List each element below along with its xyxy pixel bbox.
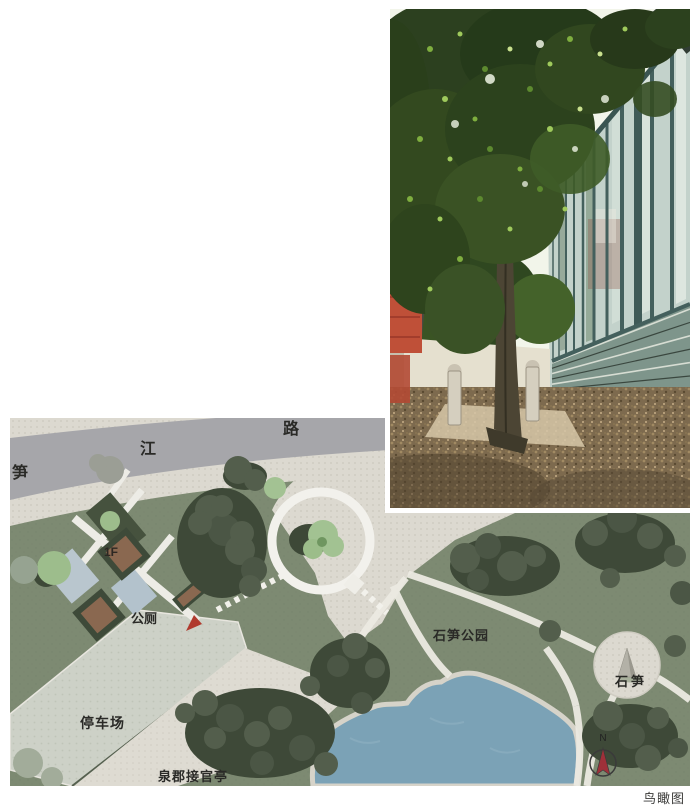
road-name-char-3: 路	[283, 421, 299, 439]
pavilion-label: 泉郡接官亭	[158, 770, 228, 784]
site-photo	[390, 9, 690, 508]
stone-label: 石笋	[615, 675, 647, 689]
compass-north-label: N	[595, 733, 611, 744]
page-caption: 鸟瞰图	[600, 788, 685, 807]
site-photo-drawing	[390, 9, 690, 508]
toilet-label: 公厕	[131, 612, 157, 626]
road-name-char-1: 笋	[12, 465, 28, 483]
portfolio-page: 笋 江 路 1F 公厕 停车场 泉郡接官亭 石笋公园 石笋 N 鸟瞰图	[0, 0, 690, 812]
floor-label: 1F	[104, 546, 118, 559]
park-name-label: 石笋公园	[433, 629, 489, 643]
parking-label: 停车场	[80, 716, 125, 731]
road-name-char-2: 江	[140, 441, 156, 459]
